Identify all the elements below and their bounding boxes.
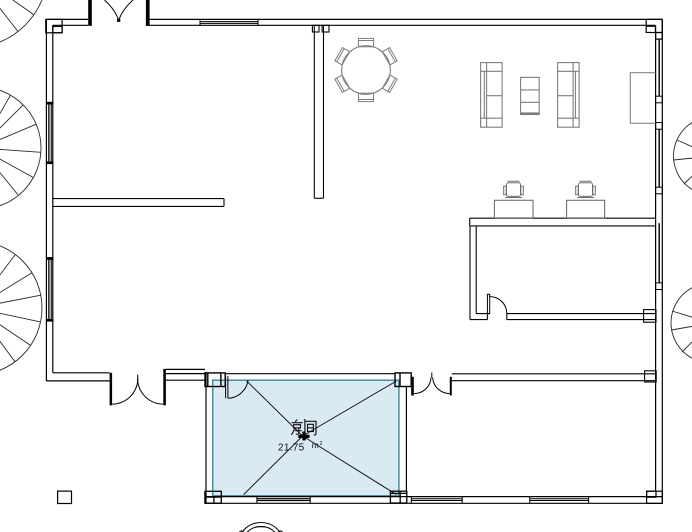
svg-text:2: 2 [320, 441, 323, 447]
svg-text:21.75: 21.75 [278, 443, 305, 454]
svg-text:m: m [312, 440, 319, 450]
